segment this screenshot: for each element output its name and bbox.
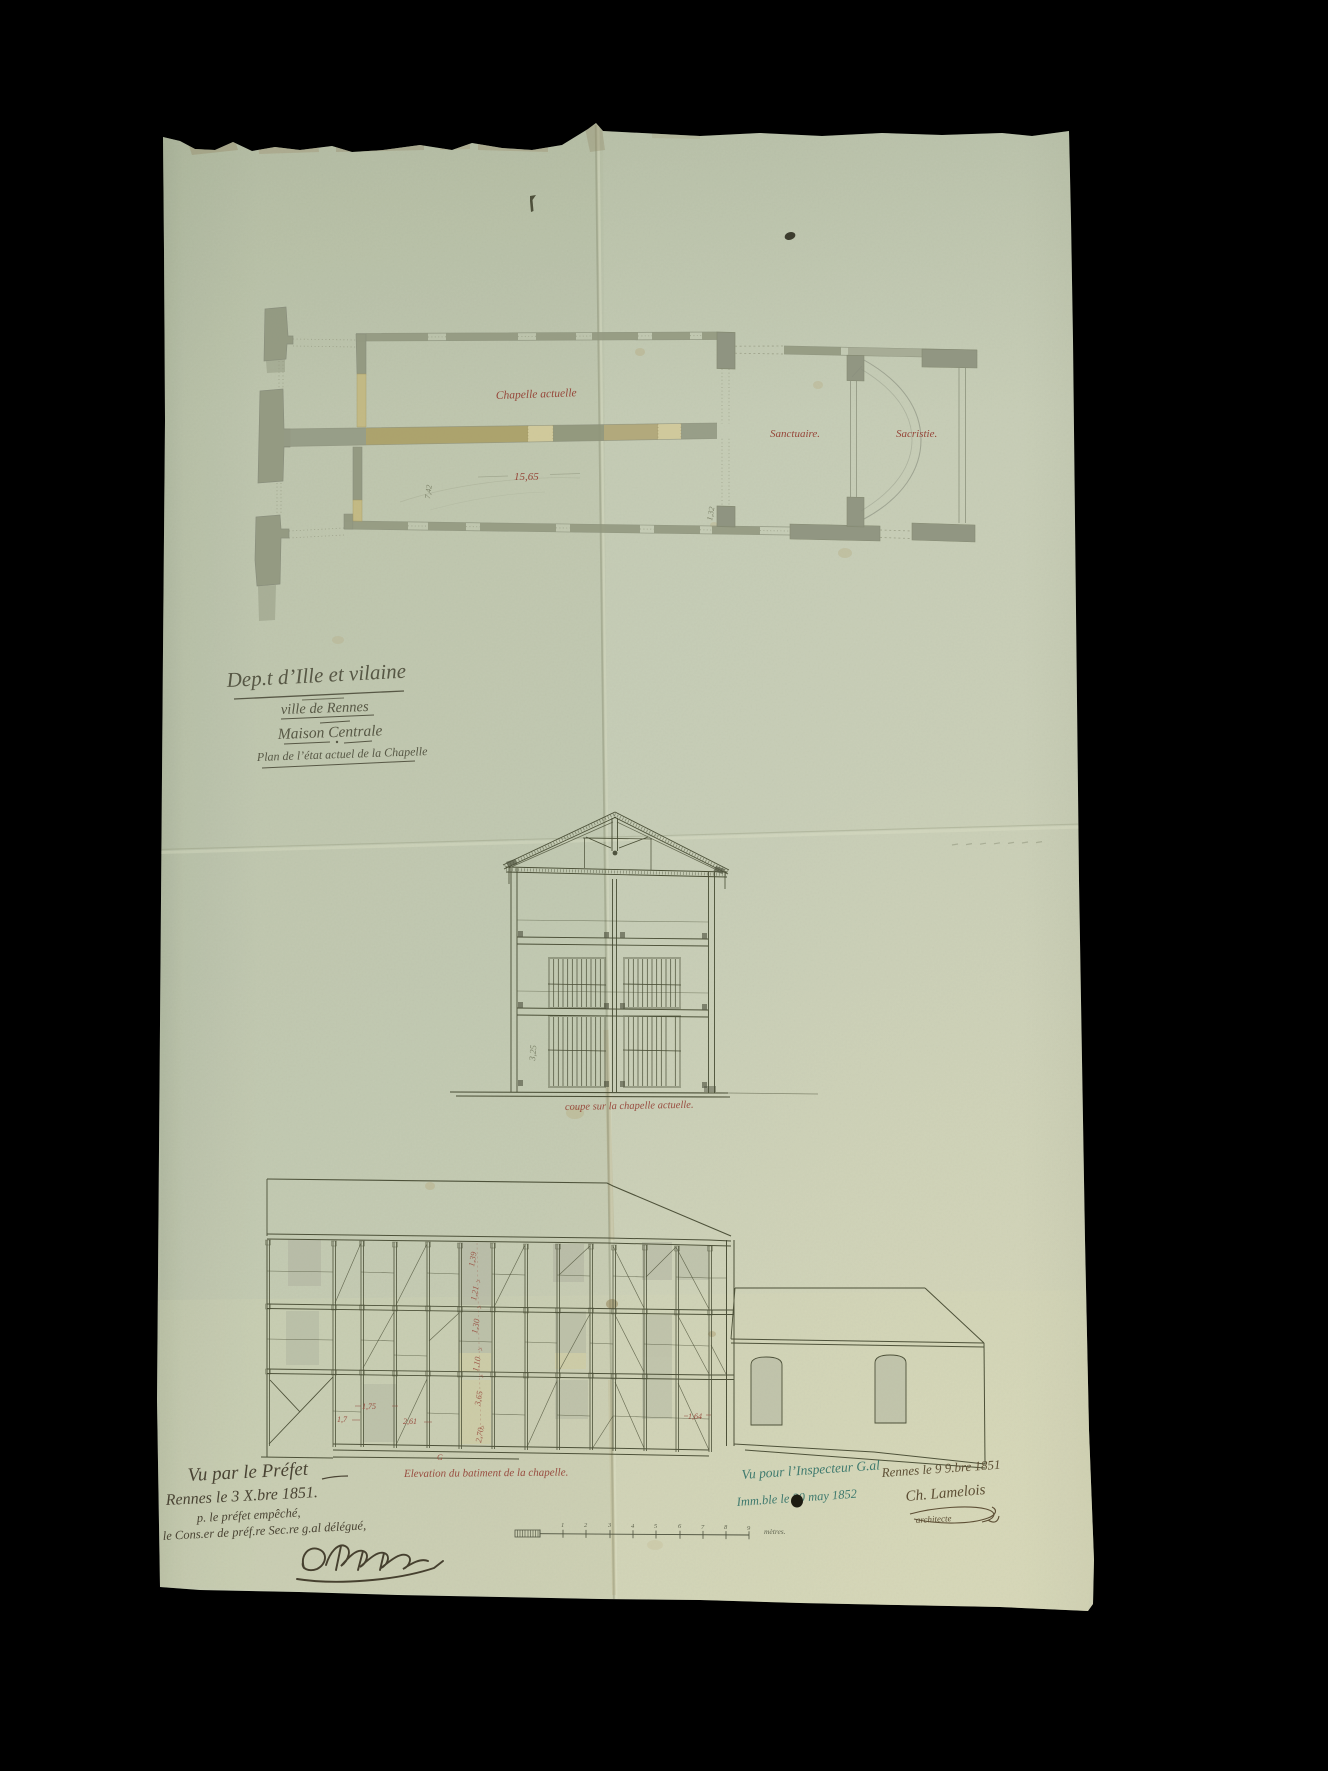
svg-text:coupe sur la chapelle actuelle: coupe sur la chapelle actuelle. (565, 1100, 694, 1113)
svg-text:1,64: 1,64 (688, 1412, 702, 1421)
svg-text:architecte: architecte (916, 1513, 952, 1525)
svg-text:Sanctuaire.: Sanctuaire. (770, 428, 820, 440)
svg-text:7,42: 7,42 (423, 484, 434, 499)
svg-text:1: 1 (561, 1522, 564, 1529)
svg-text:3,25: 3,25 (527, 1044, 538, 1062)
svg-text:1,7: 1,7 (337, 1415, 348, 1424)
svg-text:2,61: 2,61 (403, 1417, 417, 1426)
svg-text:1,75: 1,75 (362, 1402, 376, 1411)
svg-text:mètres.: mètres. (764, 1527, 786, 1536)
svg-text:Sacristie.: Sacristie. (896, 428, 937, 440)
svg-text:ville de Rennes: ville de Rennes (281, 699, 370, 718)
svg-text:15,65: 15,65 (514, 471, 539, 483)
svg-text:G: G (437, 1453, 443, 1462)
svg-text:Elevation du batiment de la ch: Elevation du batiment de la chapelle. (403, 1467, 568, 1480)
